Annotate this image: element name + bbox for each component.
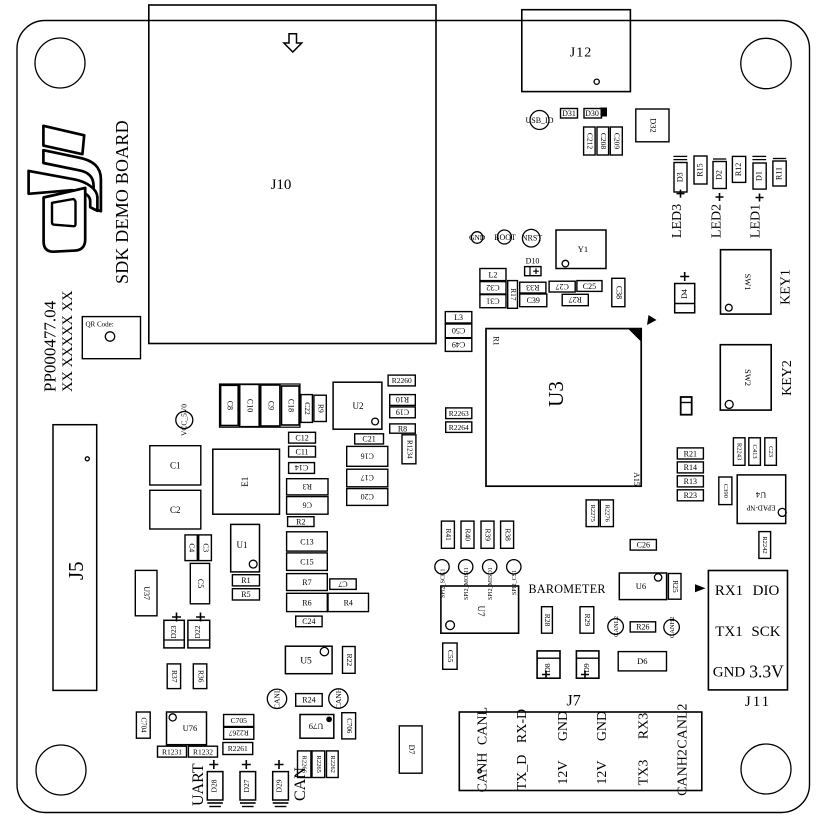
svg-text:12V: 12V <box>595 760 610 784</box>
svg-text:R1: R1 <box>492 336 501 345</box>
svg-text:U3: U3 <box>544 381 568 407</box>
svg-text:R29: R29 <box>583 614 592 627</box>
svg-text:PP000477.04: PP000477.04 <box>41 300 60 392</box>
svg-text:R25: R25 <box>671 580 680 593</box>
svg-text:C13: C13 <box>300 537 313 546</box>
svg-text:C12: C12 <box>295 434 308 443</box>
svg-text:R1231: R1231 <box>162 747 182 756</box>
svg-text:C32: C32 <box>486 283 499 292</box>
svg-text:USB_ID: USB_ID <box>525 116 553 125</box>
svg-text:U37: U37 <box>142 586 151 600</box>
svg-text:C49: C49 <box>452 340 465 349</box>
svg-text:R36: R36 <box>196 670 205 683</box>
svg-text:R3: R3 <box>303 482 312 491</box>
svg-text:C38: C38 <box>614 286 623 299</box>
svg-text:D3: D3 <box>675 172 684 182</box>
svg-text:C705: C705 <box>231 716 248 725</box>
svg-text:QR Code:: QR Code: <box>86 321 114 329</box>
svg-text:C8: C8 <box>225 401 234 410</box>
svg-text:D1: D1 <box>755 171 764 181</box>
svg-text:LED2: LED2 <box>710 204 725 238</box>
svg-text:D32: D32 <box>648 118 658 133</box>
svg-text:J11: J11 <box>745 694 771 710</box>
svg-text:C50: C50 <box>452 326 465 335</box>
svg-text:SPI2_CS1: SPI2_CS1 <box>512 570 518 595</box>
svg-text:TX_D: TX_D <box>515 755 530 791</box>
svg-text:CANH2: CANH2 <box>669 616 676 638</box>
svg-text:SDK DEMO BOARD: SDK DEMO BOARD <box>112 120 132 284</box>
svg-text:C14: C14 <box>295 463 308 472</box>
svg-text:R1232: R1232 <box>193 747 213 756</box>
svg-text:L2: L2 <box>489 270 498 279</box>
svg-text:LED3: LED3 <box>670 204 685 238</box>
svg-text:C6: C6 <box>303 501 312 510</box>
svg-text:Y1: Y1 <box>578 244 588 254</box>
svg-text:C1: C1 <box>170 461 181 471</box>
svg-text:D31: D31 <box>562 109 576 118</box>
svg-text:DIO: DIO <box>753 583 780 599</box>
svg-text:R26: R26 <box>636 623 649 632</box>
svg-text:R2263: R2263 <box>449 409 469 418</box>
svg-text:R9: R9 <box>316 404 325 413</box>
svg-text:R11: R11 <box>774 167 783 180</box>
svg-text:D8: D8 <box>543 663 552 672</box>
svg-text:C3: C3 <box>201 543 210 552</box>
svg-text:L3: L3 <box>454 313 463 322</box>
svg-text:GND: GND <box>469 233 486 242</box>
svg-text:C15: C15 <box>300 557 313 566</box>
svg-text:EPAD-NP: EPAD-NP <box>746 504 775 512</box>
svg-text:C17: C17 <box>361 473 374 482</box>
svg-text:GND: GND <box>713 665 746 681</box>
svg-text:U2: U2 <box>353 401 364 411</box>
svg-text:VCC_5V0: VCC_5V0 <box>180 404 189 436</box>
svg-text:C25: C25 <box>583 282 596 291</box>
svg-text:GND: GND <box>556 711 571 741</box>
svg-text:C55: C55 <box>446 650 455 663</box>
svg-text:C23: C23 <box>767 446 774 457</box>
svg-text:CANH2: CANH2 <box>675 749 690 796</box>
svg-text:LED1: LED1 <box>749 204 764 238</box>
svg-text:R1234: R1234 <box>405 440 413 459</box>
svg-text:R1: R1 <box>241 576 250 585</box>
svg-text:R2262: R2262 <box>329 756 336 773</box>
svg-text:U5: U5 <box>300 657 312 667</box>
svg-text:R24: R24 <box>302 696 315 705</box>
svg-text:D4: D4 <box>680 289 689 299</box>
svg-text:R38: R38 <box>503 528 512 541</box>
svg-text:R33: R33 <box>526 283 539 292</box>
svg-text:R2264: R2264 <box>449 423 469 432</box>
svg-text:C2: C2 <box>170 505 181 515</box>
svg-text:J5: J5 <box>64 561 88 580</box>
svg-text:D10: D10 <box>526 257 540 266</box>
svg-text:R37: R37 <box>170 670 179 683</box>
svg-text:R2242: R2242 <box>761 536 768 553</box>
svg-text:D30: D30 <box>585 109 599 118</box>
svg-text:C22: C22 <box>303 402 312 415</box>
svg-text:R5: R5 <box>241 590 250 599</box>
svg-text:C5: C5 <box>196 579 205 588</box>
svg-text:D6: D6 <box>637 656 647 666</box>
svg-text:R4: R4 <box>344 598 353 607</box>
svg-text:C24: C24 <box>302 617 315 626</box>
svg-text:XX XXXXX XX: XX XXXXX XX <box>60 290 76 392</box>
svg-text:U76: U76 <box>183 723 198 733</box>
svg-text:R41: R41 <box>444 528 453 541</box>
svg-text:C26: C26 <box>637 541 650 550</box>
svg-text:C10: C10 <box>246 399 255 412</box>
svg-text:C704: C704 <box>140 718 148 734</box>
svg-text:R2265: R2265 <box>315 756 322 773</box>
svg-text:C7: C7 <box>338 579 347 588</box>
svg-text:R21: R21 <box>684 449 697 458</box>
svg-text:R22: R22 <box>345 654 354 667</box>
svg-text:GND: GND <box>595 711 610 741</box>
svg-text:C20: C20 <box>361 492 374 501</box>
svg-text:C208: C208 <box>599 133 608 150</box>
svg-text:D29: D29 <box>275 779 284 792</box>
svg-text:CANL2: CANL2 <box>613 616 620 637</box>
svg-text:J10: J10 <box>271 177 292 193</box>
svg-text:D7: D7 <box>407 745 416 755</box>
svg-text:C413: C413 <box>751 445 758 459</box>
svg-text:RX3: RX3 <box>636 713 651 739</box>
svg-text:R15: R15 <box>695 163 704 176</box>
svg-text:BAROMETER: BAROMETER <box>529 582 607 596</box>
svg-text:CANL: CANL <box>475 707 490 745</box>
svg-text:D2: D2 <box>715 170 724 180</box>
svg-text:C16: C16 <box>361 452 374 461</box>
svg-text:J12: J12 <box>570 46 592 61</box>
svg-text:D28: D28 <box>210 779 219 792</box>
svg-text:D23: D23 <box>169 625 178 638</box>
svg-text:R2261: R2261 <box>228 744 248 753</box>
svg-text:SPI2_MISO1: SPI2_MISO1 <box>488 567 494 600</box>
svg-text:C4: C4 <box>187 543 196 552</box>
svg-text:SCK: SCK <box>751 624 780 640</box>
svg-text:R17: R17 <box>509 288 518 301</box>
svg-text:C21: C21 <box>362 435 375 444</box>
svg-text:C39: C39 <box>527 296 540 305</box>
svg-text:C19: C19 <box>396 408 409 417</box>
svg-text:U7: U7 <box>476 606 486 617</box>
svg-text:R7: R7 <box>302 578 311 587</box>
svg-text:C18: C18 <box>286 399 295 412</box>
svg-text:BOOT: BOOT <box>494 233 516 242</box>
svg-text:D27: D27 <box>242 779 251 792</box>
svg-text:U6: U6 <box>636 581 646 591</box>
svg-text:SW2: SW2 <box>743 369 753 386</box>
svg-text:U79: U79 <box>309 722 324 732</box>
svg-text:TX1: TX1 <box>715 624 743 640</box>
svg-text:SPI2_MOSI1: SPI2_MOSI1 <box>464 567 470 600</box>
svg-text:C27: C27 <box>555 282 568 291</box>
svg-text:R6: R6 <box>302 598 311 607</box>
svg-text:C31: C31 <box>486 296 499 305</box>
svg-text:UART: UART <box>190 763 207 806</box>
svg-text:R2260: R2260 <box>392 376 412 385</box>
svg-text:R2267: R2267 <box>228 729 248 738</box>
svg-text:CANH: CANH <box>334 687 343 709</box>
svg-text:R8: R8 <box>398 424 407 433</box>
svg-text:R14: R14 <box>684 463 697 472</box>
svg-text:RX1: RX1 <box>715 583 743 599</box>
svg-text:CANL: CANL <box>273 688 282 709</box>
svg-text:R2266: R2266 <box>301 756 308 774</box>
svg-text:D9: D9 <box>582 663 591 672</box>
svg-text:U1: U1 <box>237 540 248 550</box>
svg-text:A15: A15 <box>632 472 641 486</box>
svg-text:E1: E1 <box>240 477 250 487</box>
svg-text:RX-D: RX-D <box>515 709 530 743</box>
svg-text:R28: R28 <box>543 614 552 627</box>
svg-text:R40: R40 <box>464 528 473 541</box>
svg-text:R39: R39 <box>484 528 493 541</box>
svg-text:C11: C11 <box>296 447 309 456</box>
svg-text:R23: R23 <box>684 491 697 500</box>
svg-text:KEY2: KEY2 <box>780 360 795 396</box>
svg-text:SW1: SW1 <box>743 274 753 291</box>
svg-text:NRST: NRST <box>522 234 543 243</box>
svg-text:12V: 12V <box>556 760 571 784</box>
svg-text:R12: R12 <box>734 163 743 176</box>
svg-text:3.3V: 3.3V <box>749 662 784 682</box>
svg-text:J7: J7 <box>566 693 580 710</box>
svg-text:C212: C212 <box>586 133 595 150</box>
svg-text:D22: D22 <box>193 625 202 638</box>
svg-text:R27: R27 <box>569 295 582 304</box>
svg-text:R2275: R2275 <box>589 505 596 522</box>
svg-text:CANL2: CANL2 <box>675 703 690 748</box>
svg-text:R2: R2 <box>296 517 305 526</box>
svg-text:C9: C9 <box>266 401 275 410</box>
svg-text:U4: U4 <box>755 490 766 500</box>
svg-text:R13: R13 <box>684 477 697 486</box>
svg-text:KEY1: KEY1 <box>779 269 794 305</box>
svg-text:C209: C209 <box>613 133 622 150</box>
svg-text:R10: R10 <box>396 395 409 404</box>
svg-text:R2276: R2276 <box>603 505 610 523</box>
svg-text:C706: C706 <box>345 718 353 734</box>
svg-text:C390: C390 <box>722 484 729 498</box>
svg-text:R2243: R2243 <box>736 443 743 460</box>
svg-text:TX3: TX3 <box>636 760 651 786</box>
